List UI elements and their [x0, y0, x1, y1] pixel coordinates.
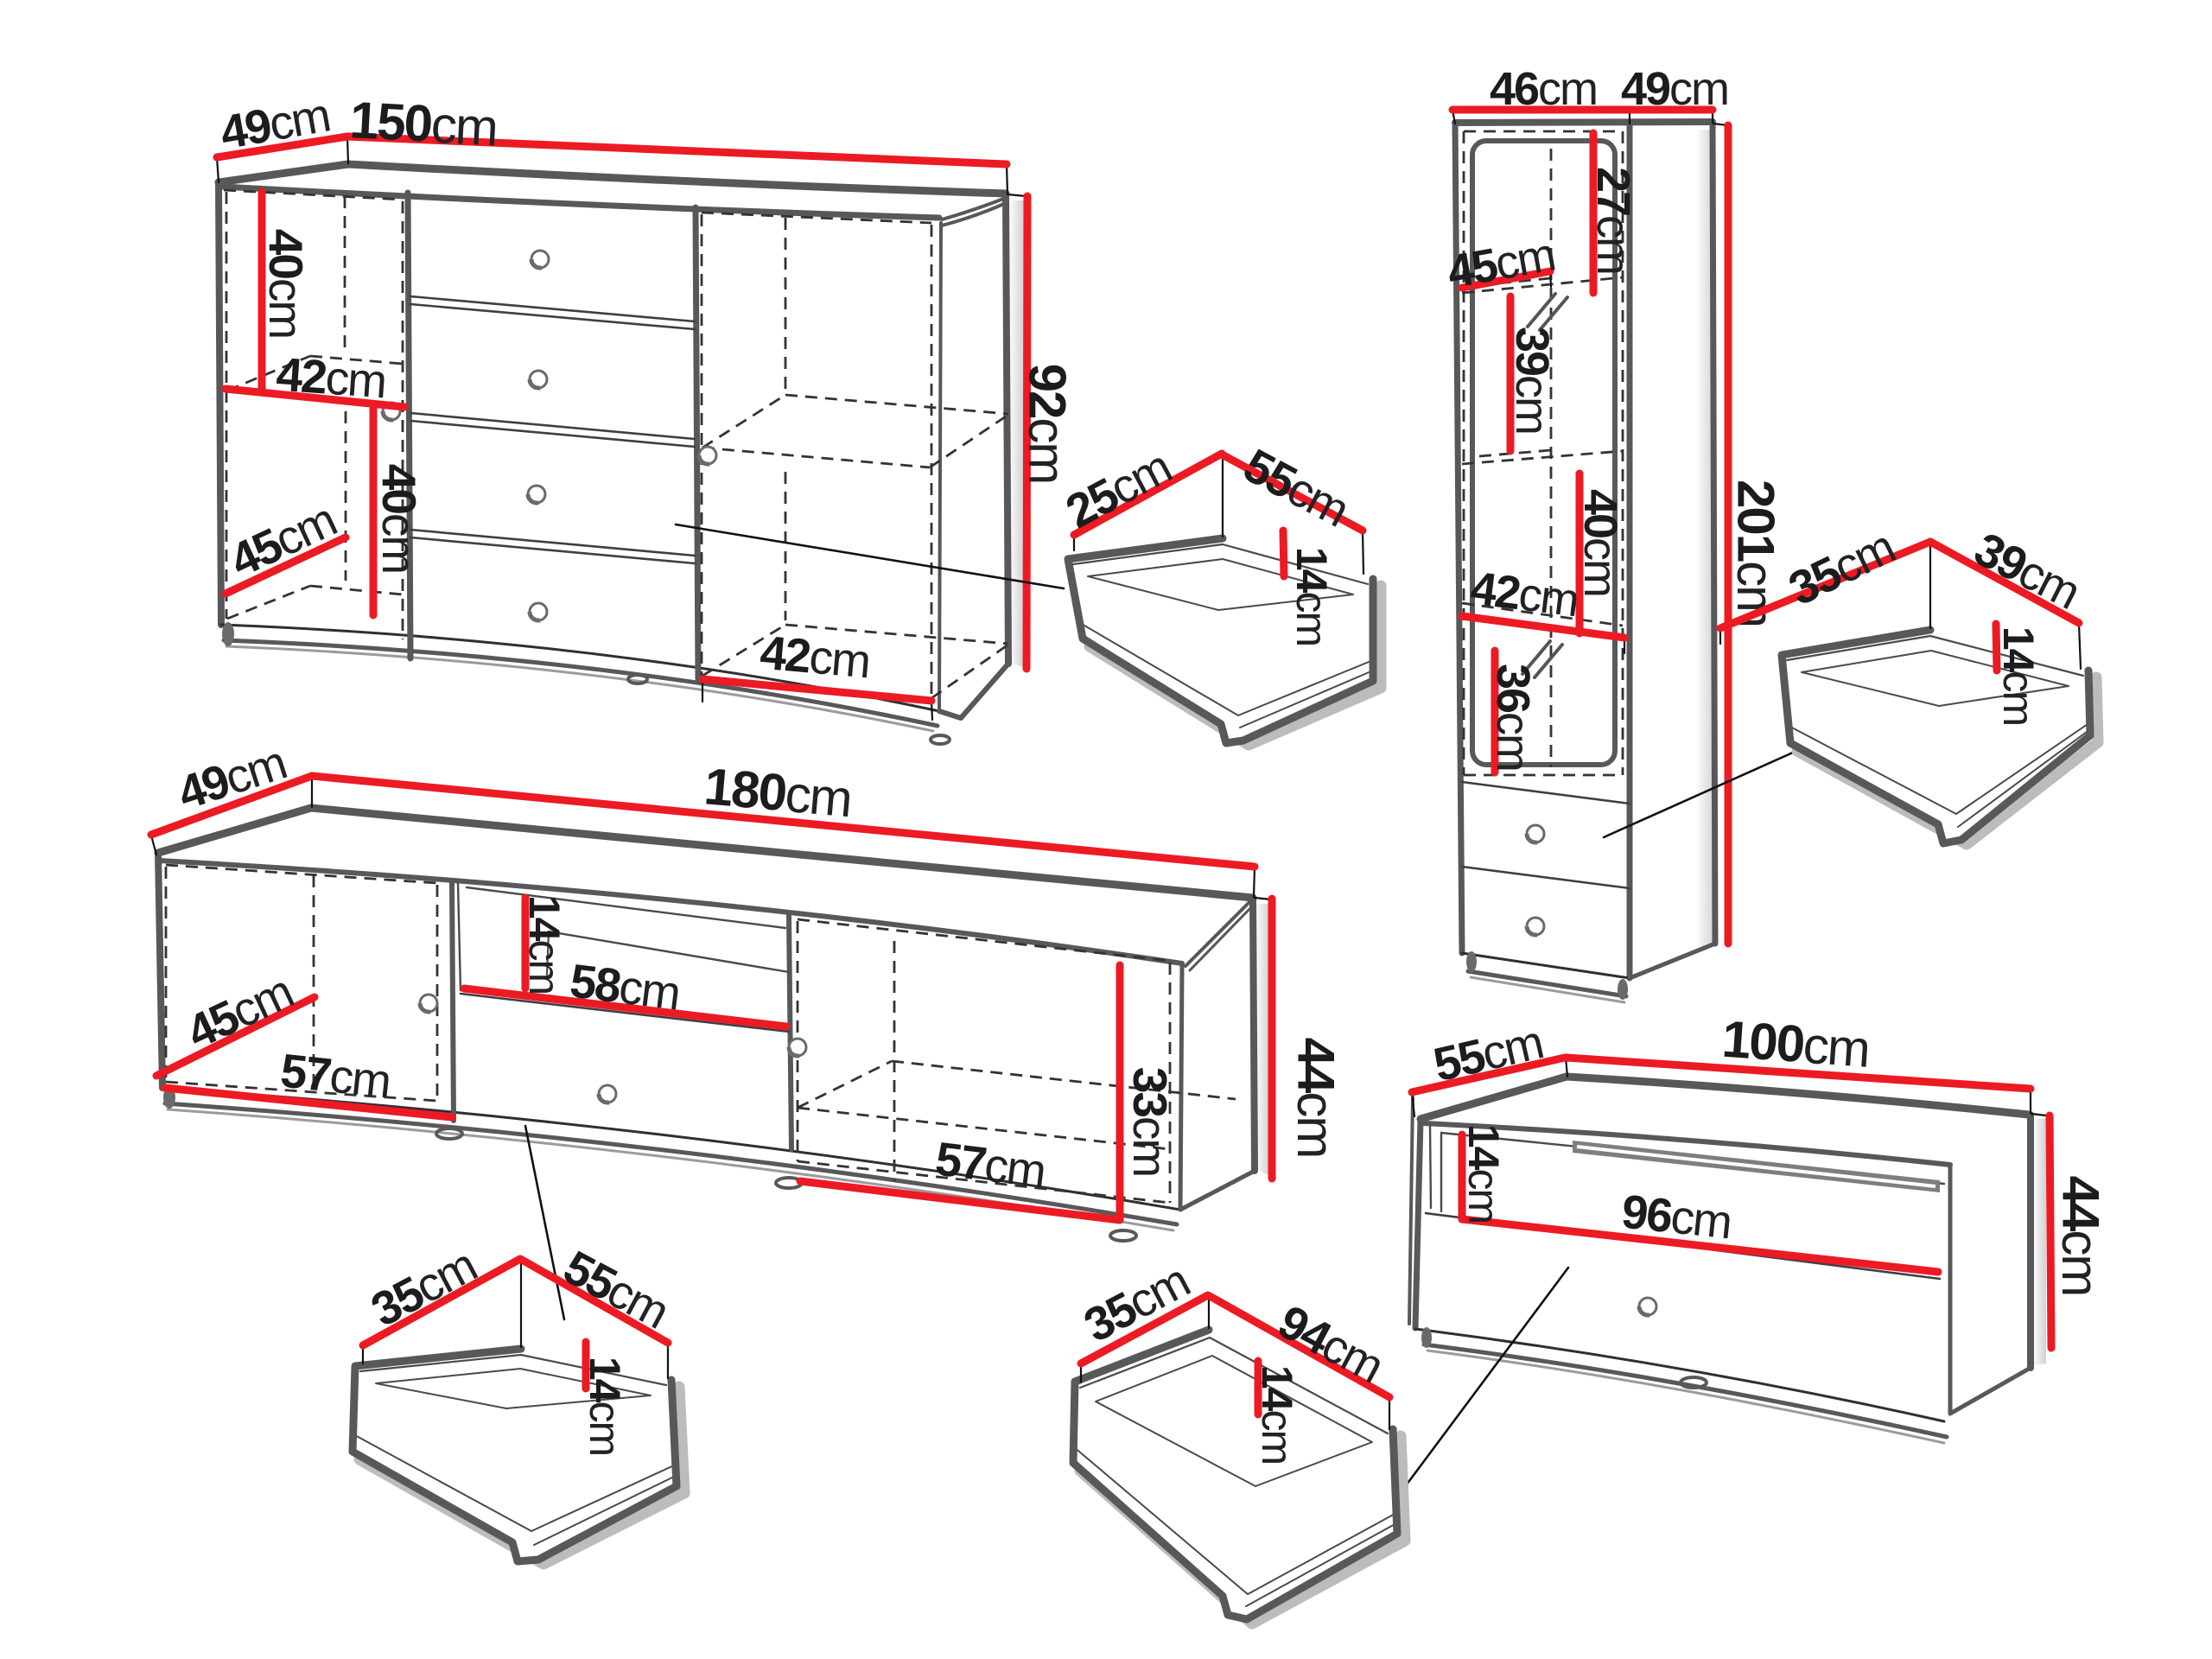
svg-text:100cm: 100cm [1720, 1010, 1871, 1078]
svg-text:33cm: 33cm [1123, 1067, 1177, 1177]
svg-text:27cm: 27cm [1587, 167, 1639, 274]
svg-text:96cm: 96cm [1619, 1185, 1733, 1249]
svg-text:44cm: 44cm [1287, 1038, 1345, 1158]
svg-text:14cm: 14cm [1994, 626, 2043, 725]
svg-text:92cm: 92cm [1019, 364, 1077, 484]
svg-text:14cm: 14cm [1253, 1365, 1301, 1464]
svg-text:14cm: 14cm [1459, 1124, 1508, 1223]
svg-text:49cm: 49cm [1621, 63, 1728, 115]
svg-text:150cm: 150cm [348, 91, 498, 156]
svg-text:40cm: 40cm [1574, 489, 1626, 596]
svg-text:14cm: 14cm [581, 1357, 629, 1455]
svg-text:36cm: 36cm [1487, 664, 1539, 771]
svg-text:14cm: 14cm [1287, 547, 1336, 645]
svg-text:14cm: 14cm [520, 895, 569, 994]
svg-text:42cm: 42cm [275, 347, 388, 409]
svg-text:57cm: 57cm [278, 1044, 392, 1109]
svg-text:40cm: 40cm [259, 229, 313, 339]
svg-text:40cm: 40cm [372, 464, 426, 574]
svg-text:39cm: 39cm [1506, 327, 1558, 434]
svg-text:46cm: 46cm [1490, 63, 1597, 115]
svg-text:42cm: 42cm [758, 626, 871, 689]
svg-text:44cm: 44cm [2052, 1176, 2110, 1296]
